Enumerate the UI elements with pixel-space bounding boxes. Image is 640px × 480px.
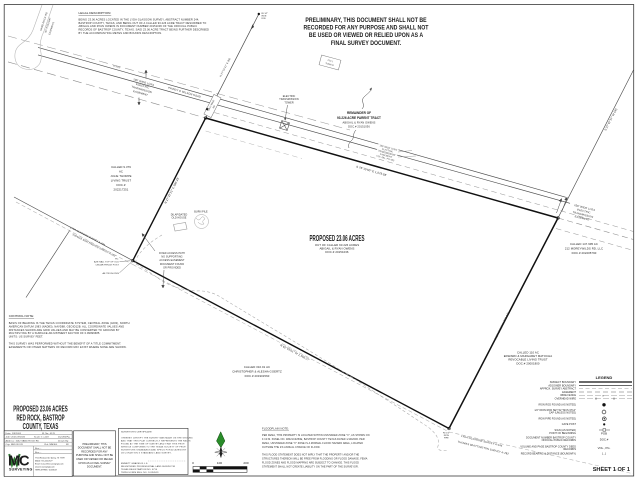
svg-text:REGISTERED PROFESSIONAL LAND S: REGISTERED PROFESSIONAL LAND SURVEYOR <box>121 465 175 468</box>
svg-text:SURVEYING: SURVEYING <box>9 467 33 471</box>
svg-text:N 27°22'21" E (M): N 27°22'21" E (M) <box>219 57 231 77</box>
svg-text:TBPELS FIRM REG. NO. 10194519: TBPELS FIRM REG. NO. 10194519 <box>121 472 159 474</box>
svg-text:LEGEND: LEGEND <box>596 375 613 380</box>
svg-text:FINAL SURVEY DOCUMENT.: FINAL SURVEY DOCUMENT. <box>331 40 402 47</box>
svg-text:RECORD BEARING & DISTANCE (BOU: RECORD BEARING & DISTANCE (BOUNDARY) <box>521 452 576 455</box>
svg-text:S 75°10'50" E 1,579.58': S 75°10'50" E 1,579.58' <box>356 165 388 178</box>
svg-text:RECORDED FOR ANY: RECORDED FOR ANY <box>81 449 108 453</box>
svg-text:SURVEYORS STANDARDS AND SPECS: SURVEYORS STANDARDS AND SPECS FOR A CATE… <box>121 449 187 452</box>
svg-text:CALLED 9.379: CALLED 9.379 <box>111 165 131 169</box>
svg-text:Rev: -: Rev: - <box>35 448 42 450</box>
svg-text:SERVICE CONFORMS TO THE TEXAS: SERVICE CONFORMS TO THE TEXAS SOCIETY OF… <box>121 446 187 449</box>
svg-text:Date: 1/8/2024: Date: 1/8/2024 <box>6 432 22 435</box>
svg-text:DOC.# 20151036: DOC.# 20151036 <box>325 250 349 254</box>
svg-text:GATE POST: GATE POST <box>562 423 577 426</box>
svg-text:RECORDS OF BASTROP COUNTY, TEX: RECORDS OF BASTROP COUNTY, TEXAS. SAID 2… <box>79 28 210 32</box>
svg-text:93.226 ACRE PARENT TRACT: 93.226 ACRE PARENT TRACT <box>337 116 382 120</box>
svg-text:THIS FLOOD STATEMENT DOES NOT: THIS FLOOD STATEMENT DOES NOT IMPLY THAT… <box>262 454 360 457</box>
svg-text:PURPOSE AND SHALL NOT BE: PURPOSE AND SHALL NOT BE <box>76 453 114 457</box>
svg-text:OLD HOUSE: OLD HOUSE <box>172 217 187 220</box>
svg-text:F.I.R.M. PANEL NO. 48021C0250E: F.I.R.M. PANEL NO. 48021C0250E, BASTROP … <box>262 438 365 441</box>
svg-text:100: 100 <box>217 461 222 465</box>
svg-text:NO SUPPORTING: NO SUPPORTING <box>161 256 182 259</box>
svg-text:DOC.# 201901560: DOC.# 201901560 <box>245 374 270 378</box>
svg-text:1B CONDITION II STANDARD LAND: 1B CONDITION II STANDARD LAND SURVEY. <box>121 452 172 455</box>
svg-text:DOC.#: DOC.# <box>116 183 125 187</box>
svg-text:CAP (UNLESS NOTED): CAP (UNLESS NOTED) <box>549 412 576 415</box>
svg-text:AMERICAN DATUM 1983 (NAD83), N: AMERICAN DATUM 1983 (NAD83), NAVD88, GEO… <box>9 324 125 328</box>
svg-text:www.mcsurveyingtx.com: www.mcsurveyingtx.com <box>35 465 55 468</box>
svg-text:RED ROCK, BASTROP: RED ROCK, BASTROP <box>16 414 64 423</box>
svg-text:VOL., PG.: VOL., PG. <box>598 446 611 450</box>
svg-text:RECORDS: RECORDS <box>563 448 576 451</box>
svg-text:OFFICIAL PUBLIC RECORDS: OFFICIAL PUBLIC RECORDS <box>542 439 577 442</box>
svg-text:[...]: [...] <box>602 451 606 455</box>
svg-text:AND THAT THIS PLAT CORRECTLY R: AND THAT THIS PLAT CORRECTLY REPRESENTS … <box>121 440 191 443</box>
svg-text:CALLED 310.01 AC: CALLED 310.01 AC <box>244 365 270 369</box>
svg-text:AXE NAIL TOP OF OLD: AXE NAIL TOP OF OLD <box>94 261 119 264</box>
svg-text:BURN PILE: BURN PILE <box>194 211 208 214</box>
svg-text:OR PROVIDED: OR PROVIDED <box>163 266 181 269</box>
svg-text:CHRISTOPHER & ALESHA GOERTZ: CHRISTOPHER & ALESHA GOERTZ <box>232 370 282 374</box>
svg-text:OVERHEAD WIRE: OVERHEAD WIRE <box>555 398 577 401</box>
svg-text:POINT OF BEGINNING: POINT OF BEGINNING <box>549 432 576 435</box>
svg-text:USED OR VIEWED OR RELIED: USED OR VIEWED OR RELIED <box>76 457 113 461</box>
svg-text:DOC.#: DOC.# <box>600 437 609 441</box>
svg-text:Dwn/Bk/Pg: Dwn/Bk/Pg <box>58 437 70 439</box>
svg-text:COUNTY, TEXAS: COUNTY, TEXAS <box>23 423 59 432</box>
svg-text:DISTANCES SHOWN ARE GRID VALUE: DISTANCES SHOWN ARE GRID VALUES AND MAY … <box>9 328 120 332</box>
svg-text:BASIS OF BEARING IS THE TEXAS: BASIS OF BEARING IS THE TEXAS COORDINATE… <box>9 321 130 325</box>
svg-text:I HEREBY CERTIFY THE SURVEY WA: I HEREBY CERTIFY THE SURVEY WAS MADE ON … <box>121 437 193 440</box>
svg-text:LEGAL DESCRIPTION:: LEGAL DESCRIPTION: <box>79 11 112 15</box>
svg-text:Mobile: 713-252-9577: Mobile: 713-252-9577 <box>35 460 52 462</box>
svg-text:x: x <box>602 394 604 397</box>
svg-text:EASEMENTS OR OTHER MATTERS OF: EASEMENTS OR OTHER MATTERS OF RECORD MAY… <box>9 345 127 349</box>
svg-text:REMAINDER OF: REMAINDER OF <box>347 111 372 115</box>
svg-text:BY THE ACCOMPANYING METES AND: BY THE ACCOMPANYING METES AND BOUNDS DES… <box>79 31 163 35</box>
svg-text:202217251: 202217251 <box>114 188 129 192</box>
svg-text:EMMETT GRAVES R.L.S.: EMMETT GRAVES R.L.S. <box>121 462 148 465</box>
svg-text:CONTROL NOTE:: CONTROL NOTE: <box>9 314 34 318</box>
svg-text:FEMA, UNSHADED ZONE "X" ZONE I: FEMA, UNSHADED ZONE "X" ZONE IS A MINIMA… <box>262 442 363 445</box>
svg-text:N: N <box>220 451 223 455</box>
svg-text:TBPELS FIRM # 10194519: TBPELS FIRM # 10194519 <box>35 469 57 471</box>
svg-text:212 MOREYWILDS RD, LLC: 212 MOREYWILDS RD, LLC <box>565 247 603 251</box>
svg-text:TOWER: TOWER <box>284 101 294 104</box>
svg-text:THIS SURVEY WAS PERFORMED WITH: THIS SURVEY WAS PERFORMED WITHOUT THE BE… <box>9 342 122 346</box>
svg-text:0: 0 <box>192 461 194 465</box>
svg-text:DOCUMENT FOUND: DOCUMENT FOUND <box>160 263 185 266</box>
svg-text:City: RED ROCK: City: RED ROCK <box>6 443 24 446</box>
svg-text:PIPE: PIPE <box>444 438 449 440</box>
svg-text:PROPOSED 23.06 ACRES: PROPOSED 23.06 ACRES <box>13 405 68 414</box>
svg-text:IRON ROD FOUND (AS NOTED): IRON ROD FOUND (AS NOTED) <box>538 404 576 407</box>
svg-text:ACCESS EASEMENT: ACCESS EASEMENT <box>159 259 185 262</box>
svg-text:UNITS: US SURVEY FEET.: UNITS: US SURVEY FEET. <box>9 335 44 339</box>
svg-text:MULTIPLYING BY A SURFACE ADJUS: MULTIPLYING BY A SURFACE ADJUSTMENT FACT… <box>9 331 101 335</box>
svg-text:JULIE THORPE: JULIE THORPE <box>110 174 131 178</box>
svg-text:BEING 23.06 ACRES LOCATED IN T: BEING 23.06 ACRES LOCATED IN THE LYDA GL… <box>79 17 200 21</box>
svg-text:POB: POB <box>601 431 607 435</box>
svg-text:Email: mcsurv@mcsurveyingtx.co: Email: mcsurv@mcsurveyingtx.com <box>35 462 64 465</box>
svg-text:7711 Westward Dr. Spring, TX 7: 7711 Westward Dr. Spring, TX 77379 <box>35 456 65 459</box>
svg-text:BE USED OR VIEWED OR RELIED UP: BE USED OR VIEWED OR RELIED UPON AS A <box>309 33 424 40</box>
svg-text:FD.: FD. <box>115 259 119 261</box>
svg-text:DOCUMENT SHALL NOT BE: DOCUMENT SHALL NOT BE <box>78 446 112 450</box>
svg-text:FIXED ACCESS PATH: FIXED ACCESS PATH <box>159 252 185 255</box>
svg-text:AE TRICHONIS: AE TRICHONIS <box>103 272 120 275</box>
svg-text:S 27°19'12" W 891.12': S 27°19'12" W 891.12' <box>493 311 510 340</box>
svg-text:OUTSIDE THE 2% ANNUAL CHANCE O: OUTSIDE THE 2% ANNUAL CHANCE OF FLOOD. <box>262 446 321 449</box>
svg-text:STRUCTURES THEREON WILL BE FRE: STRUCTURES THEREON WILL BE FREE FROM FLO… <box>262 458 368 461</box>
svg-text:Address: 1062 SAND ROCK RD: Address: 1062 SAND ROCK RD <box>6 439 40 442</box>
svg-text:CEDAR FENCE POST: CEDAR FENCE POST <box>95 264 119 267</box>
svg-text:STATEMENT SHALL NOT CREATE LIA: STATEMENT SHALL NOT CREATE LIABILITY ON … <box>262 465 359 468</box>
svg-text:ROD: ROD <box>262 18 267 20</box>
svg-text:DOC.# 20151036: DOC.# 20151036 <box>348 125 370 129</box>
svg-text:Scale: 1"=100': Scale: 1"=100' <box>34 437 50 439</box>
svg-text:FLOODPLAIN NOTE:: FLOODPLAIN NOTE: <box>262 427 289 431</box>
svg-text:N 27°22'21" E 580.43': N 27°22'21" E 580.43' <box>163 176 180 204</box>
svg-text:Job# 2023-091345: Job# 2023-091345 <box>6 437 26 439</box>
svg-text:W. No. 4176: W. No. 4176 <box>42 433 56 435</box>
svg-text:RECORDED FOR ANY PURPOSE AND S: RECORDED FOR ANY PURPOSE AND SHALL NOT <box>304 25 429 32</box>
svg-text:BASTROP COUNTY, TEXAS, AND BEI: BASTROP COUNTY, TEXAS, AND BEING OUT OF … <box>79 21 207 25</box>
svg-text:DOC.# 20001800: DOC.# 20001800 <box>516 361 540 365</box>
svg-text:SHEET 1 OF 1: SHEET 1 OF 1 <box>593 467 630 473</box>
svg-text:Rev: -: Rev: - <box>35 452 42 454</box>
svg-text:Drawn By:: Drawn By: <box>58 439 69 442</box>
svg-text:ABIGAIL & RYAN OWENS: ABIGAIL & RYAN OWENS <box>342 121 375 125</box>
svg-text:PRELIMINARY, THIS DOCUMENT SHA: PRELIMINARY, THIS DOCUMENT SHALL NOT BE <box>305 18 426 25</box>
svg-text:IRON PIPE FOUND (AS NOTED): IRON PIPE FOUND (AS NOTED) <box>538 418 576 421</box>
svg-text:Chk: MM/EG: Chk: MM/EG <box>44 444 58 446</box>
svg-text:DOC.# 202205790: DOC.# 202205790 <box>572 251 597 255</box>
svg-text:PER FEMA, THIS PROPERTY IS LOC: PER FEMA, THIS PROPERTY IS LOCATED WITHI… <box>262 434 370 437</box>
svg-text:LIVING TRUST: LIVING TRUST <box>111 179 132 183</box>
svg-text:ABIGAIL AND RYAN OWENS IN DOCU: ABIGAIL AND RYAN OWENS IN DOCUMENT NUMBE… <box>79 24 198 28</box>
svg-text:AC: AC <box>119 170 123 174</box>
svg-text:DOCUMENT.: DOCUMENT. <box>87 465 102 469</box>
svg-text:FLOOD ZONES AND FLOOD MAPPING: FLOOD ZONES AND FLOOD MAPPING ARE SUBJEC… <box>262 462 359 465</box>
svg-text:SURVEYOR'S CERTIFICATE:: SURVEYOR'S CERTIFICATE: <box>121 431 153 434</box>
svg-text:UPON AS A FINAL SURVEY: UPON AS A FINAL SURVEY <box>78 461 111 465</box>
svg-text:TEXAS REGISTRATION NO. 6714: TEXAS REGISTRATION NO. 6714 <box>121 468 158 471</box>
svg-text:S 27°07'37" W (M): S 27°07'37" W (M) <box>603 108 618 132</box>
svg-text:FOUND AT THE TIME OF SURVEY AN: FOUND AT THE TIME OF SURVEY AND THAT THI… <box>121 443 185 446</box>
svg-text:CALLED 147.995 AC: CALLED 147.995 AC <box>570 242 598 246</box>
svg-text:200: 200 <box>243 461 248 465</box>
svg-text:PRELIMINARY, THIS: PRELIMINARY, THIS <box>82 442 106 446</box>
